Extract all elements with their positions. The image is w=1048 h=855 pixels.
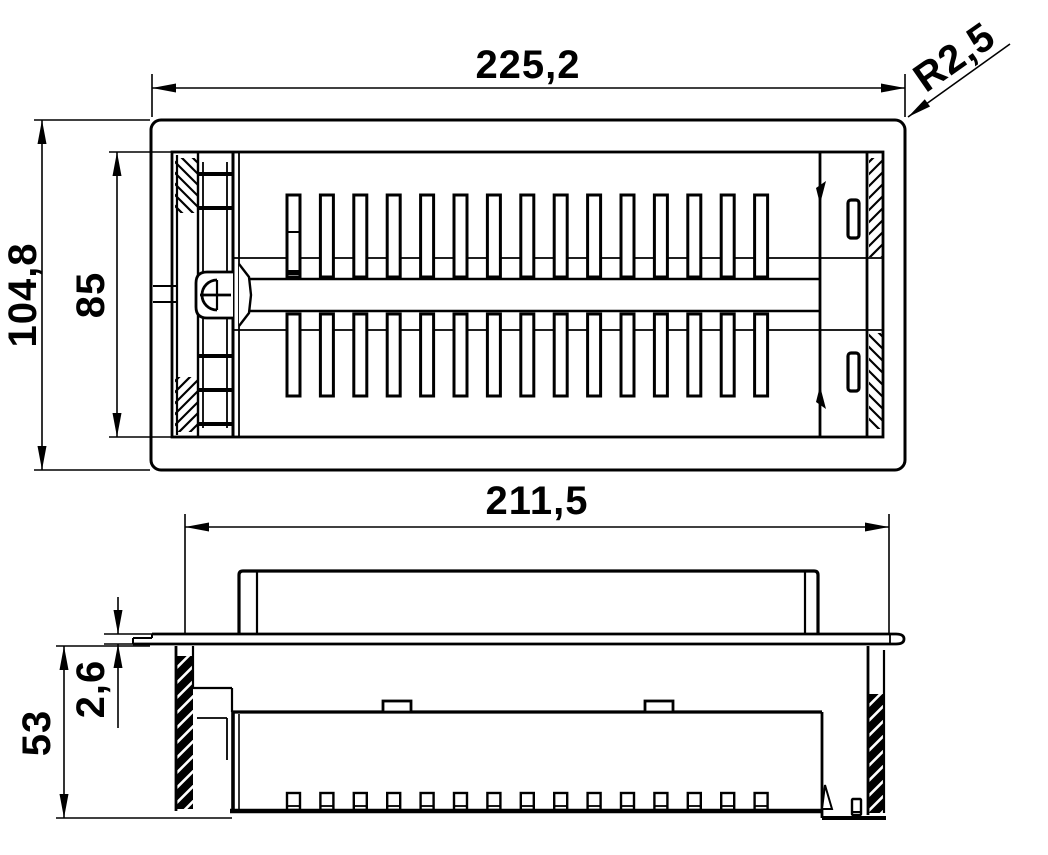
dim-arrowhead [905,99,930,120]
louver-slot [287,195,300,277]
bottom-tab [755,793,768,810]
bottom-tab [320,793,333,810]
louver-slot [554,314,567,396]
bottom-tab [387,793,400,810]
dim-overall-width: 225,2 [152,43,905,117]
dim-arrowhead [60,646,69,670]
louver-slot [421,314,434,396]
louver-slot [521,314,534,396]
dim-arrowhead [152,84,176,93]
louver-slot [320,195,333,277]
dim-insert-depth: 53 [15,646,232,818]
dim-overall-width-label: 225,2 [475,43,580,87]
front-view [133,571,904,855]
louver-slot [454,195,467,277]
bottom-tabs [287,793,768,810]
louver-slot [387,195,400,277]
louver-slot [755,314,768,396]
louver-slot [454,314,467,396]
bottom-tab [454,793,467,810]
dim-arrowhead [113,152,122,176]
dim-arrowhead [38,120,47,144]
dim-arrowhead [881,84,905,93]
corner-wedge [822,785,832,809]
louver-slot [354,195,367,277]
bottom-tab [621,793,634,810]
louver-slot [721,195,734,277]
dim-arrowhead [185,523,209,532]
louver-slot [487,195,500,277]
louver-slot [387,314,400,396]
bottom-tab [487,793,500,810]
dim-corner-radius: R2,5 [906,14,1010,117]
louver-slot [487,314,500,396]
dim-corner-radius-label: R2,5 [906,14,1004,101]
bottom-tab [521,793,534,810]
dim-insert-depth-label: 53 [15,710,59,757]
bottom-tab [421,793,434,810]
bottom-tab [554,793,567,810]
bottom-tab [721,793,734,810]
dim-arrowhead [38,446,47,470]
bottom-tab [654,793,667,810]
lid-outline [239,571,818,634]
louver-slot [654,314,667,396]
louver-slot [320,314,333,396]
dim-arrowhead [113,413,122,437]
dim-arrowhead [114,644,123,668]
louver-slot [287,314,300,396]
louver-slot [354,314,367,396]
louver-slot [554,195,567,277]
bottom-tab [688,793,701,810]
bottom-tab [354,793,367,810]
louver-slot [621,195,634,277]
dim-cutout-height-label: 85 [69,272,113,319]
bottom-tab [588,793,601,810]
louver-slot [421,195,434,277]
dim-flange-thickness-label: 2,6 [69,660,113,719]
top-view [151,120,905,484]
dim-arrowhead [114,610,123,634]
dim-arrowhead [865,523,889,532]
louver-slot [654,195,667,277]
serrated-clips [173,625,887,855]
dim-overall-height-label: 104,8 [1,242,45,347]
flange [133,634,904,644]
body-key-right [645,701,673,712]
louver-slot [688,314,701,396]
body-key-left [383,701,411,712]
technical-drawing: 225,2 R2,5 104,8 85 211,5 [0,0,1048,855]
dim-insert-width-label: 211,5 [486,479,589,523]
louver-slot [588,195,601,277]
dim-arrowhead [60,794,69,818]
louver-slot [688,195,701,277]
louver-slot [721,314,734,396]
louver-slot [755,195,768,277]
dim-flange-thickness: 2,6 [69,597,152,728]
drawing-canvas: 225,2 R2,5 104,8 85 211,5 [0,0,1048,855]
louver-slot [621,314,634,396]
bottom-tab [287,793,300,810]
louver-slot [521,195,534,277]
louver-slot [588,314,601,396]
